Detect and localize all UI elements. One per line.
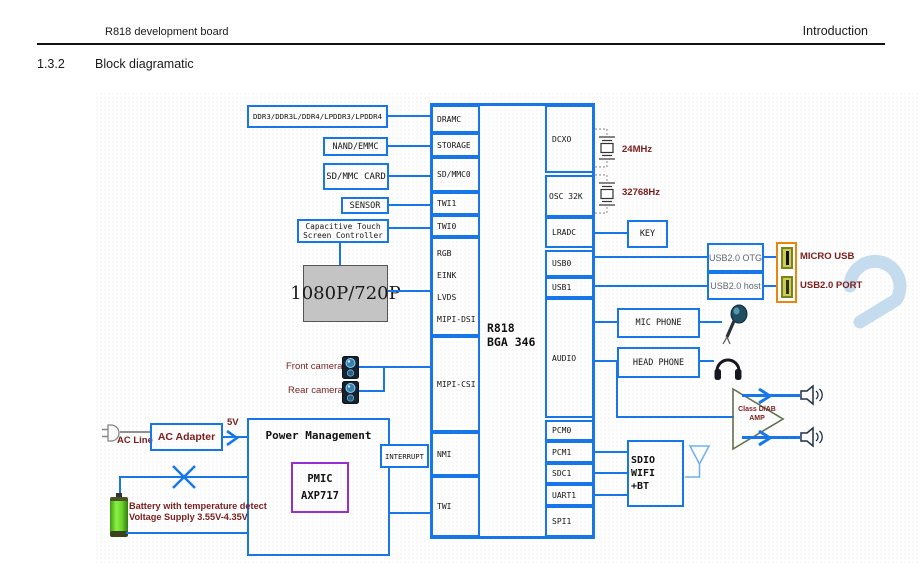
xtal-32khz-label: 32768Hz	[622, 187, 660, 198]
port-display-group: RGB EINK LVDS MIPI-DSI	[430, 237, 480, 336]
head-phone-box: HEAD PHONE	[617, 347, 700, 378]
port-nmi: NMI	[430, 432, 480, 476]
pmic-box: PMIC AXP717	[291, 462, 349, 513]
usb-connector-block	[776, 242, 797, 303]
battery-label-line2: Voltage Supply 3.55V-4.35V	[129, 512, 267, 523]
wire-nand-storage	[388, 145, 430, 147]
speaker-bottom-icon	[799, 426, 826, 448]
interrupt-box: INTERRUPT	[380, 444, 429, 468]
sensor-box: SENSOR	[341, 197, 389, 214]
wire-sdc1-sdio	[595, 472, 627, 474]
front-camera-label: Front camera	[286, 361, 343, 372]
port-twi1: TWI1	[430, 192, 480, 215]
battery-label-line1: Battery with temperature detect	[129, 501, 267, 512]
sdio-line2: +BT	[631, 480, 682, 493]
section-number: 1.3.2	[37, 57, 65, 71]
mic-phone-box: MIC PHONE	[617, 308, 700, 338]
wire-otg-connector	[764, 256, 776, 258]
port-dcxo: DCXO	[545, 105, 595, 173]
usb-host-box: USB2.0 host	[707, 272, 764, 300]
wire-audio-amp-v	[616, 360, 618, 418]
pmic-model: AXP717	[301, 490, 339, 502]
amp-label-line1: Class D/AB	[736, 406, 778, 415]
doc-title: R818 development board	[105, 26, 229, 38]
wire-ddr-dramc	[388, 115, 430, 117]
front-camera-icon	[342, 356, 359, 379]
sd-card-box: SD/MMC CARD	[323, 163, 389, 190]
speaker-top-icon	[799, 384, 826, 406]
amp-label: Class D/AB AMP	[736, 406, 778, 423]
port-dramc: DRAMC	[430, 105, 480, 133]
port-lradc: LRADC	[545, 217, 595, 248]
arrow-speaker-top-icon	[757, 387, 773, 405]
wire-touch-panel	[339, 243, 341, 265]
port-usb1: USB1	[545, 277, 595, 298]
wire-usb1-host	[595, 285, 707, 287]
wire-uart1-sdio	[595, 494, 627, 496]
power-management-title: Power Management	[249, 429, 388, 442]
port-twi: TWI	[430, 476, 480, 537]
page-section-title: Introduction	[775, 24, 868, 38]
wire-lradc-key	[595, 232, 627, 234]
wire-battery-return	[126, 532, 247, 534]
wire-plug-adapter	[120, 431, 150, 433]
wire-camera-join	[383, 366, 385, 392]
micro-usb-slot	[786, 251, 789, 265]
wire-touch-twi0	[389, 227, 430, 229]
crystal-32khz-icon	[594, 172, 620, 216]
section-title: Block diagramatic	[95, 57, 194, 71]
display-panel-box: 1080P/720P	[303, 265, 388, 322]
ac-adapter-box: AC Adapter	[150, 423, 223, 451]
battery-disconnect-x-icon	[171, 464, 197, 490]
chip-title-line2: BGA 346	[487, 335, 535, 349]
ddr-memory-box: DDR3/DDR3L/DDR4/LPDDR3/LPDDR4	[247, 105, 388, 128]
sdio-wifi-bt-box: SDIO WIFI +BT	[627, 440, 684, 507]
wire-host-connector	[764, 285, 776, 287]
port-lvds: LVDS	[437, 293, 456, 302]
chip-title-line1: R818	[487, 321, 535, 335]
document-page: { "header": { "doc_title": "R818 develop…	[0, 0, 920, 568]
port-sdc1: SDC1	[545, 463, 595, 484]
port-osc32k: OSC 32K	[545, 175, 595, 217]
port-eink: EINK	[437, 271, 456, 280]
touch-line2: Screen Controller	[303, 231, 383, 241]
arrow-speaker-bottom-icon	[757, 429, 773, 447]
wire-audio-mic	[595, 321, 617, 323]
port-uart1: UART1	[545, 484, 595, 506]
nand-emmc-box: NAND/EMMC	[323, 137, 388, 156]
usb-port-label: USB2.0 PORT	[800, 280, 862, 291]
port-pcm0: PCM0	[545, 420, 595, 441]
chip-title: R818 BGA 346	[487, 321, 535, 349]
wire-sd-sdmmc0	[389, 175, 430, 177]
micro-usb-label: MICRO USB	[800, 251, 854, 262]
sdio-line1: SDIO WIFI	[631, 454, 682, 480]
wire-frontcam-csi	[359, 366, 430, 368]
port-twi0: TWI0	[430, 215, 480, 237]
port-rgb: RGB	[437, 249, 451, 258]
header-rule	[37, 43, 885, 45]
crystal-24mhz-icon	[594, 126, 620, 170]
5v-label: 5V	[227, 417, 239, 428]
headphone-icon	[712, 349, 744, 383]
touch-controller-box: Capacitive Touch Screen Controller	[297, 219, 389, 243]
port-mipi-dsi: MIPI-DSI	[437, 315, 476, 324]
wire-usb0-otg	[595, 256, 707, 258]
arrow-5v-icon	[225, 430, 239, 446]
port-usb0: USB0	[545, 250, 595, 277]
wire-pcm1-sdio	[595, 451, 627, 453]
rear-camera-label: Rear camera	[288, 385, 343, 396]
port-audio: AUDIO	[545, 298, 595, 418]
microphone-icon	[720, 304, 750, 348]
port-sdmmc0: SD/MMC0	[430, 157, 480, 192]
touch-line1: Capacitive Touch	[305, 222, 380, 232]
port-storage: STORAGE	[430, 133, 480, 157]
wire-mic-icon	[700, 321, 722, 323]
xtal-24mhz-label: 24MHz	[622, 144, 652, 155]
wire-sensor-twi1	[389, 204, 430, 206]
battery-label: Battery with temperature detect Voltage …	[129, 501, 267, 523]
wire-audio-headphone	[595, 360, 617, 362]
pmic-label: PMIC	[307, 473, 332, 485]
antenna-icon	[684, 444, 712, 480]
key-box: KEY	[627, 220, 668, 248]
watermark	[836, 250, 920, 334]
usb-port-connector-icon	[781, 276, 793, 298]
port-mipi-csi: MIPI-CSI	[430, 336, 480, 432]
amp-label-line2: AMP	[736, 415, 778, 424]
micro-usb-connector-icon	[781, 247, 793, 269]
wire-audio-amp-h	[616, 416, 734, 418]
wire-panel-lvds	[388, 290, 430, 292]
usb-port-slot	[786, 280, 789, 294]
port-spi1: SPI1	[545, 506, 595, 537]
rear-camera-icon	[342, 381, 359, 404]
wire-rearcam	[359, 390, 385, 392]
ac-line-label: AC Line	[117, 435, 153, 446]
usb-otg-box: USB2.0 OTG	[707, 243, 764, 272]
wire-pm-twi	[390, 512, 430, 514]
port-pcm1: PCM1	[545, 441, 595, 463]
